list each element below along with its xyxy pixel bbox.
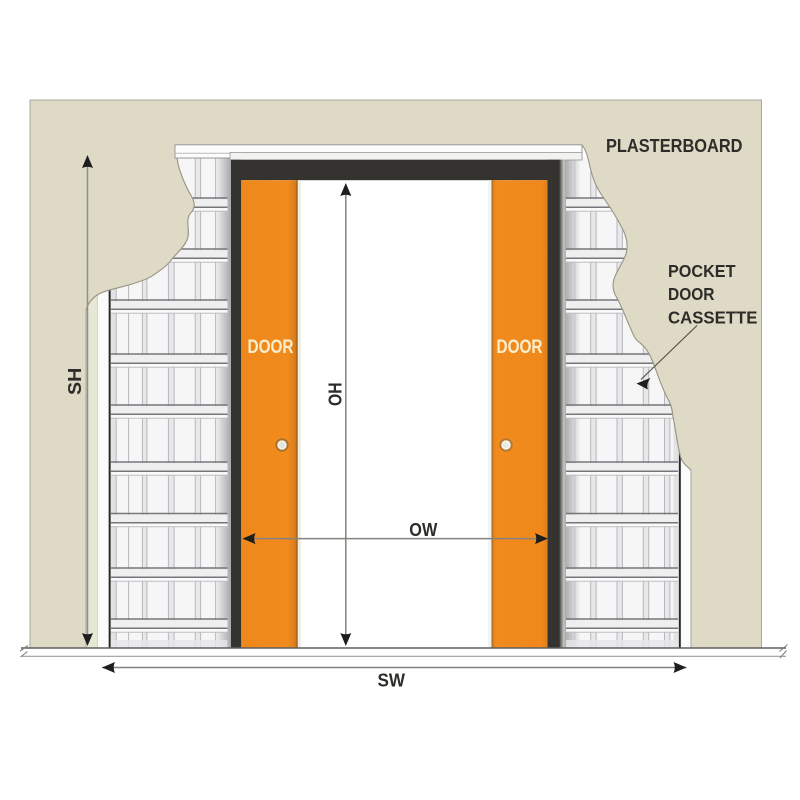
svg-text:DOOR: DOOR [248,337,294,358]
svg-text:OH: OH [325,382,346,406]
svg-text:DOOR: DOOR [668,284,715,304]
svg-text:CASSETTE: CASSETTE [668,307,758,327]
svg-text:PLASTERBOARD: PLASTERBOARD [606,135,743,156]
svg-text:DOOR: DOOR [497,337,543,358]
svg-text:SW: SW [377,670,405,691]
svg-text:POCKET: POCKET [668,261,736,281]
svg-text:SH: SH [64,368,85,395]
svg-text:OW: OW [409,519,437,540]
